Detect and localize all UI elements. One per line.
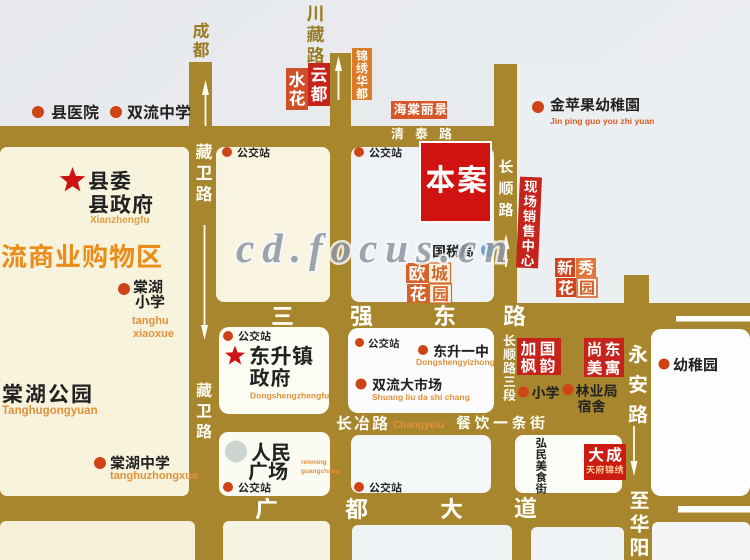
svg-text:Tanghugongyuan: Tanghugongyuan xyxy=(2,405,98,417)
svg-text:tanghu: tanghu xyxy=(132,315,169,327)
svg-text:renming: renming xyxy=(301,459,327,466)
svg-text:xiaoxue: xiaoxue xyxy=(133,328,174,340)
svg-text:Changyelu: Changyelu xyxy=(393,420,444,431)
svg-text:cd.focus.cn: cd.focus.cn xyxy=(236,225,515,271)
svg-text:tanghuzhongxue: tanghuzhongxue xyxy=(110,470,198,482)
svg-text:Shuang liu da shi chang: Shuang liu da shi chang xyxy=(372,392,470,402)
svg-text:Jin ping guo you zhi yuan: Jin ping guo you zhi yuan xyxy=(550,116,654,126)
svg-text:guangchang: guangchang xyxy=(301,468,340,475)
svg-text:Dongshengyizhong: Dongshengyizhong xyxy=(416,357,495,367)
svg-text:Dongshengzhengfu: Dongshengzhengfu xyxy=(250,391,329,401)
svg-text:Xianzhengfu: Xianzhengfu xyxy=(90,215,149,226)
